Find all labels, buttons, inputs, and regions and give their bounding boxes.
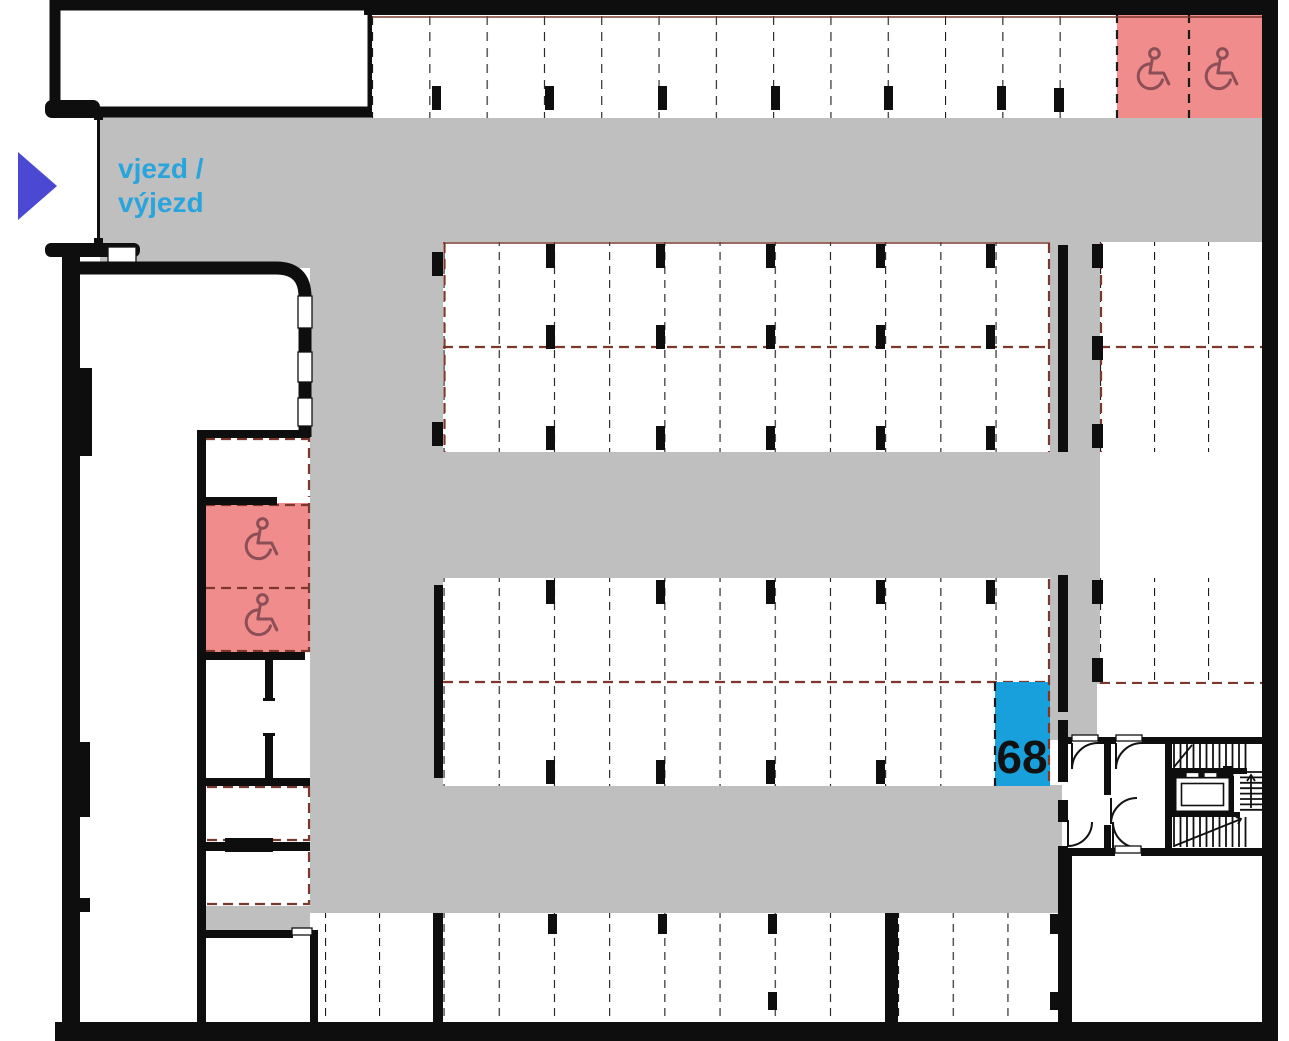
parking-block-b: 68 xyxy=(443,578,1050,786)
stair-landing xyxy=(1097,684,1262,737)
right-arrow-icon xyxy=(18,152,57,220)
utility-room-top-left xyxy=(55,5,373,112)
entrance-label-line1: vjezd / xyxy=(118,153,204,184)
parking-row-bottom xyxy=(325,913,1062,1023)
floor-plan: 68 xyxy=(0,0,1289,1041)
accessible-space[interactable] xyxy=(205,503,310,588)
parking-block-a xyxy=(443,242,1050,452)
room-bottom-right xyxy=(1062,846,1262,1022)
entrance-label-line2: výjezd xyxy=(118,187,204,218)
parking-block-right-b xyxy=(1097,578,1262,737)
parking-block-right-a xyxy=(1100,242,1262,452)
space-number-label: 68 xyxy=(996,731,1047,783)
parking-row-top xyxy=(372,14,1262,118)
stair-core xyxy=(1062,735,1262,852)
elevator xyxy=(1174,773,1231,814)
